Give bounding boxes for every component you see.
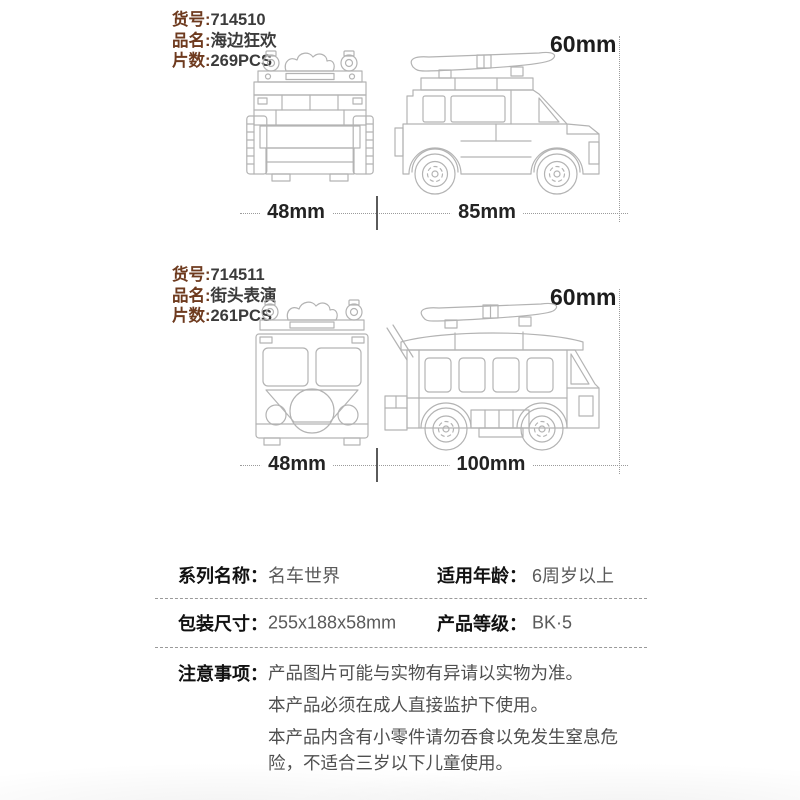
age-range-value: 6周岁以上 [532, 562, 614, 588]
item-no-value: 714511 [211, 266, 265, 284]
series-name-value: 名车世界 [268, 562, 340, 588]
product2-bottom-dimensions: 48mm 100mm [240, 456, 628, 482]
age-range-label: 适用年龄： [437, 562, 527, 588]
product1-item-row: 货号:714510 [172, 10, 277, 31]
product1-bottom-dimensions: 48mm 85mm [240, 204, 628, 230]
item-no-label: 货号: [172, 266, 211, 284]
notes-text: 产品图片可能与实物有异请以实物为准。 本产品必须在成人直接监护下使用。 本产品内… [268, 660, 630, 776]
product1-front-view-drawing [246, 50, 374, 198]
product-name-label: 品名: [172, 287, 211, 305]
package-size-value: 255x188x58mm [268, 613, 396, 634]
note-line: 本产品必须在成人直接监护下使用。 [268, 692, 630, 718]
product-grade-value: BK·5 [532, 613, 572, 634]
product1-side-view-drawing [393, 46, 613, 202]
product2-length-dimension: 100mm [450, 453, 533, 476]
series-name-label: 系列名称： [178, 562, 268, 588]
product2-item-row: 货号:714511 [172, 265, 277, 286]
product2-side-view-drawing [383, 298, 617, 456]
package-size-label: 包装尺寸： [178, 610, 268, 636]
product1-width-dimension: 48mm [260, 201, 332, 224]
product1-length-dimension: 85mm [451, 201, 523, 224]
pieces-label: 片数: [172, 307, 211, 325]
product2-width-dimension: 48mm [261, 453, 333, 476]
product-name-value: 海边狂欢 [211, 32, 277, 50]
spec-row-package-grade: 包装尺寸： 255x188x58mm 产品等级： BK·5 [155, 599, 647, 648]
product1-name-row: 品名:海边狂欢 [172, 31, 277, 52]
notes-section: 注意事项： 产品图片可能与实物有异请以实物为准。 本产品必须在成人直接监护下使用… [155, 648, 647, 776]
note-line: 产品图片可能与实物有异请以实物为准。 [268, 660, 630, 686]
spec-table: 系列名称： 名车世界 适用年龄： 6周岁以上 包装尺寸： 255x188x58m… [155, 552, 647, 782]
product-grade-label: 产品等级： [437, 610, 527, 636]
pieces-label: 片数: [172, 52, 211, 70]
product1-height-dimension-line [619, 36, 620, 222]
dimension-divider-tick [376, 196, 378, 230]
product-spec-sheet: 货号:714510 品名:海边狂欢 片数:269PCS 60mm [0, 0, 800, 800]
product-name-label: 品名: [172, 32, 211, 50]
product2-front-view-drawing [246, 298, 378, 456]
item-no-label: 货号: [172, 11, 211, 29]
spec-row-series-age: 系列名称： 名车世界 适用年龄： 6周岁以上 [155, 552, 647, 599]
notes-label: 注意事项： [178, 660, 268, 686]
item-no-value: 714510 [211, 11, 266, 29]
dimension-divider-tick [376, 448, 378, 482]
product2-height-dimension-line [619, 289, 620, 474]
note-line: 本产品内含有小零件请勿吞食以免发生窒息危险，不适合三岁以下儿童使用。 [268, 724, 630, 776]
